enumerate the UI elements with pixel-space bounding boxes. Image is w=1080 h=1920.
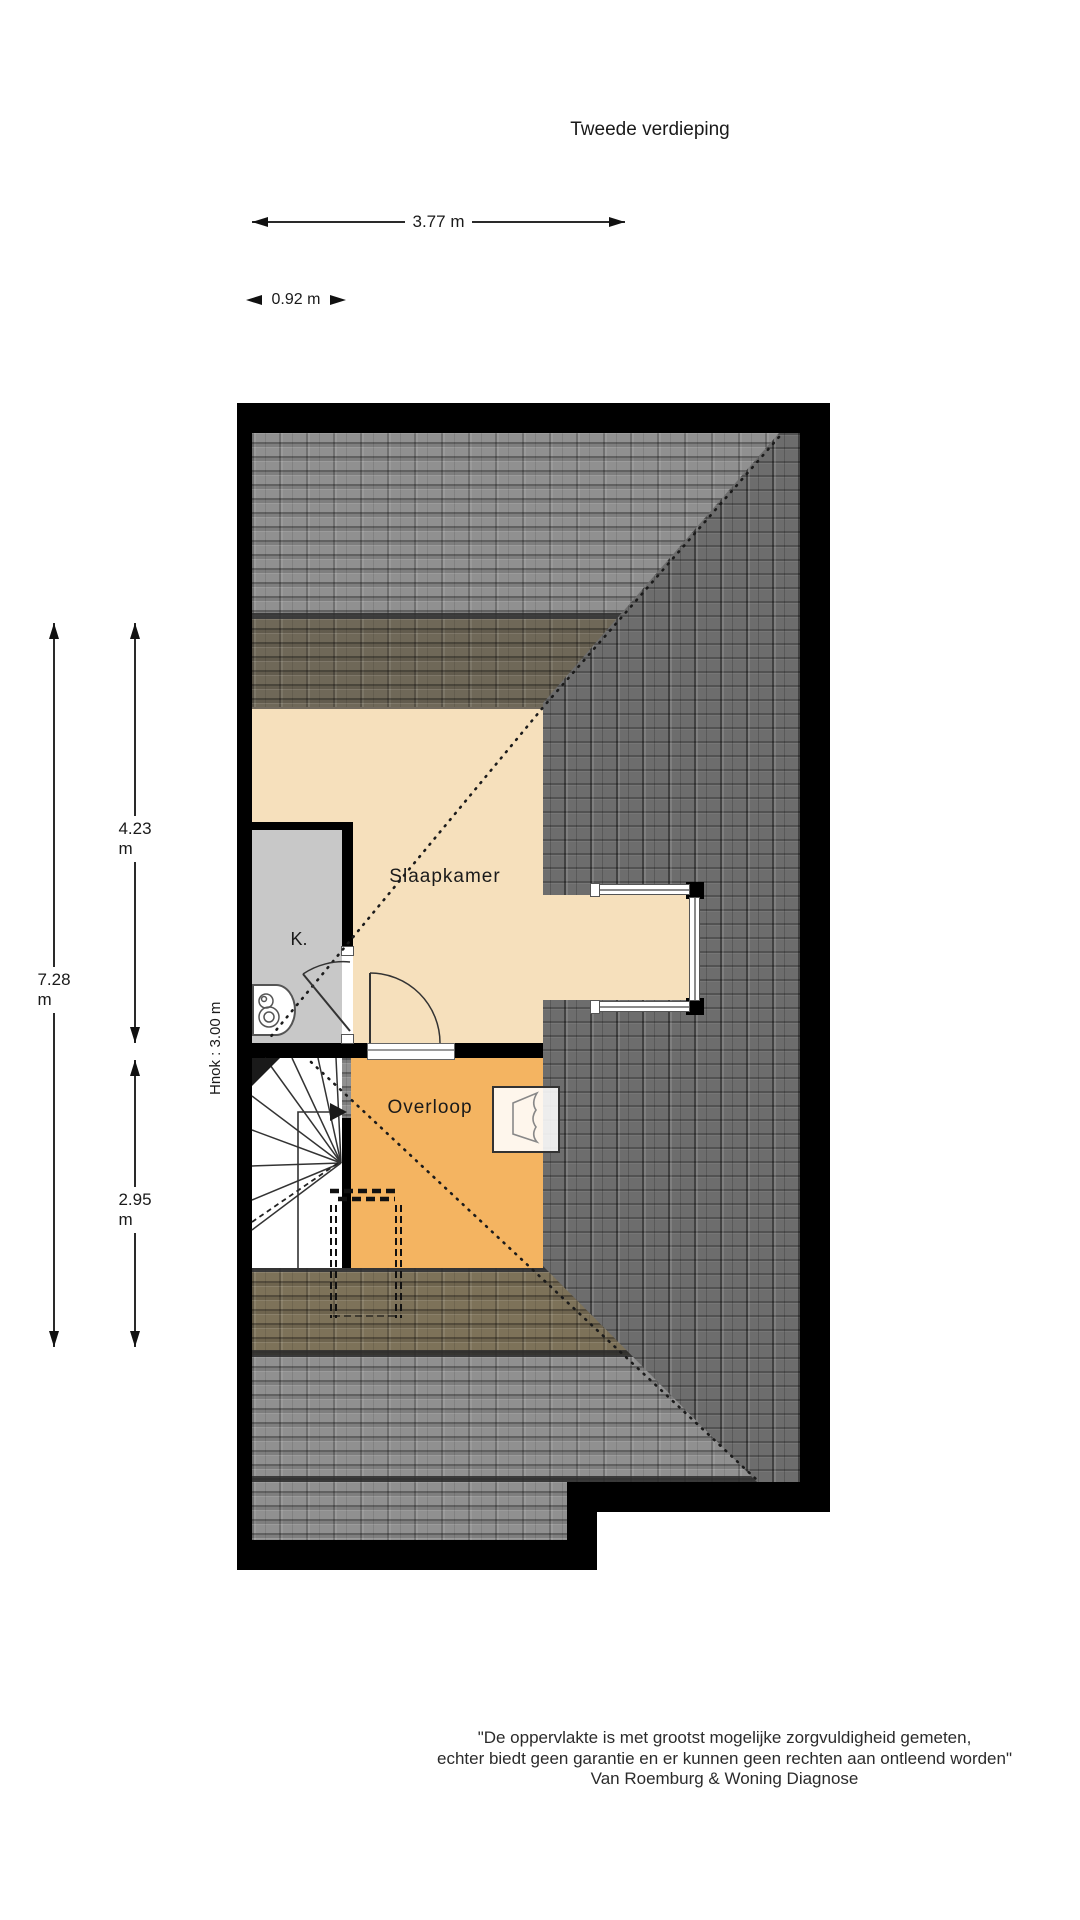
roof-hip-line xyxy=(268,437,779,1040)
stair-tread xyxy=(252,1163,341,1200)
stair-tread xyxy=(252,1163,341,1166)
disclaimer-line: Van Roemburg & Woning Diagnose xyxy=(362,1769,1080,1790)
room-label-slaapkamer: Slaapkamer xyxy=(345,866,545,888)
floorplan-page: Tweede verdieping 3.77 m 0.92 m 7.28 m 4… xyxy=(0,0,1080,1920)
stair-tread xyxy=(252,1096,341,1163)
disclaimer-line: "De oppervlakte is met grootst mogelijke… xyxy=(362,1728,1080,1749)
boiler-dial xyxy=(264,1012,274,1022)
room-label-overloop: Overloop xyxy=(330,1097,530,1119)
door-arc-bedroom xyxy=(370,973,440,1043)
stair-dashed-line xyxy=(252,1161,341,1222)
room-label-closet: K. xyxy=(281,929,317,950)
boiler-dial xyxy=(259,1007,279,1027)
plan-vector-overlay xyxy=(0,0,1080,1920)
boiler-dial xyxy=(262,997,267,1002)
stair-walk-line xyxy=(298,1112,330,1268)
stair-tread xyxy=(252,1163,341,1230)
disclaimer: "De oppervlakte is met grootst mogelijke… xyxy=(362,1728,1080,1790)
disclaimer-line: echter biedt geen garantie en er kunnen … xyxy=(362,1749,1080,1770)
door-leaf-closet xyxy=(303,974,350,1031)
